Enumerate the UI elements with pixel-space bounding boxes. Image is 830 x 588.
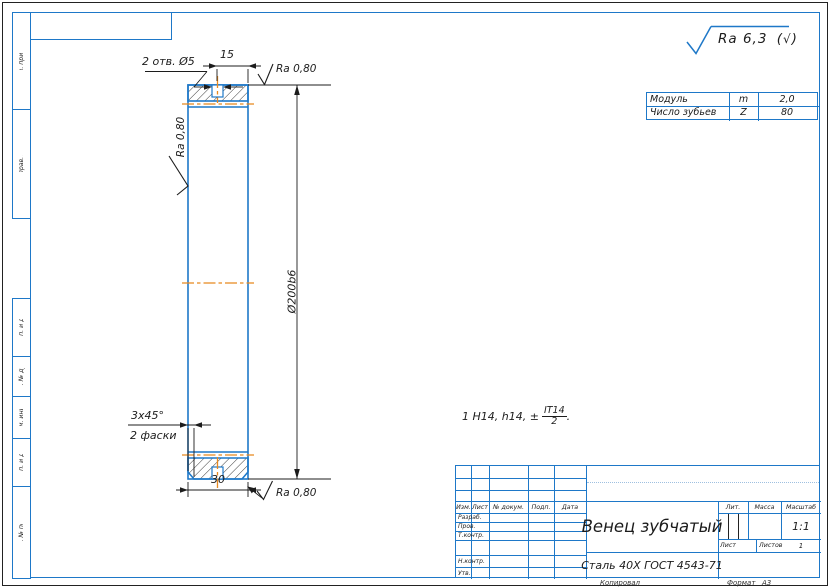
footer-copied-label: Копировал — [600, 579, 640, 587]
paren-close: ) — [792, 31, 798, 47]
material-spec: Сталь 40Х ГОСТ 4543-71 — [586, 552, 718, 579]
rim-width-dimension: 30 — [203, 473, 233, 486]
drawing-sheet: Перв. примен. Справ. № Подп. и дата Инв.… — [0, 0, 830, 588]
general-roughness-value: Ra 6,3 — [718, 31, 767, 47]
col-ndokum: № докум. — [489, 501, 528, 513]
sheet-label: Лист — [720, 539, 744, 552]
row-prov: Пров. — [458, 522, 489, 531]
param-row-module-value: 2,0 — [758, 93, 816, 106]
roughness-check-glyph: √ — [783, 32, 792, 46]
part-name: Венец зубчатый — [586, 501, 718, 552]
scale-label: Масштаб — [781, 501, 821, 513]
outer-diameter-dimension: Ø200b6 — [285, 269, 298, 313]
row-utv: Утв. — [458, 567, 489, 579]
designation-cell-dotted-line — [587, 482, 819, 483]
col-list: Лист — [471, 501, 489, 513]
row-razrab: Разраб. — [458, 513, 489, 522]
tolerance-note: 1 H14, h14, ± IT14 2 . — [462, 406, 570, 427]
sheets-label: Листов — [759, 539, 789, 552]
param-row-module-symbol: m — [729, 93, 758, 106]
tolerance-fraction-denominator: 2 — [542, 417, 567, 427]
tolerance-note-period: . — [567, 410, 571, 423]
general-roughness-note: Ra 6,3 (√) — [718, 31, 798, 47]
row-tkontr: Т.контр. — [458, 531, 489, 540]
tolerance-note-text: 1 H14, h14, ± — [462, 410, 539, 423]
lit-label: Лит. — [718, 501, 748, 513]
param-row-module-label: Модуль — [650, 93, 728, 106]
param-row-teeth-label: Число зубьев — [650, 106, 728, 119]
footer-format-label: Формат — [727, 579, 755, 587]
scale-value: 1:1 — [781, 513, 821, 539]
slot-width-dimension: 15 — [212, 48, 242, 61]
tolerance-fraction: IT14 2 — [542, 406, 567, 427]
parameter-table: Модуль m 2,0 Число зубьев Z 80 — [646, 92, 818, 120]
title-block: Изм. Лист № докум. Подп. Дата Разраб. Пр… — [455, 465, 820, 578]
param-row-teeth-symbol: Z — [729, 106, 758, 119]
surface-roughness-bottom: Ra 0,80 — [276, 487, 316, 499]
chamfer-count-note: 2 фаски — [130, 429, 176, 442]
param-row-teeth-value: 80 — [758, 106, 816, 119]
col-izm: Изм. — [456, 501, 471, 513]
col-data: Дата — [554, 501, 586, 513]
chamfer-dimension: 3x45° — [131, 409, 164, 422]
footer-format-value: А3 — [762, 579, 771, 587]
col-podp: Подп. — [528, 501, 554, 513]
surface-roughness-left: Ra 0,80 — [175, 117, 187, 157]
holes-dimension-label: 2 отв. Ø5 — [142, 55, 195, 68]
surface-roughness-top: Ra 0,80 — [276, 63, 316, 75]
roughness-check-icon — [258, 64, 273, 85]
row-nkontr: Н.контр. — [458, 555, 489, 567]
mass-label: Масса — [748, 501, 781, 513]
sheets-value: 1 — [794, 539, 808, 552]
